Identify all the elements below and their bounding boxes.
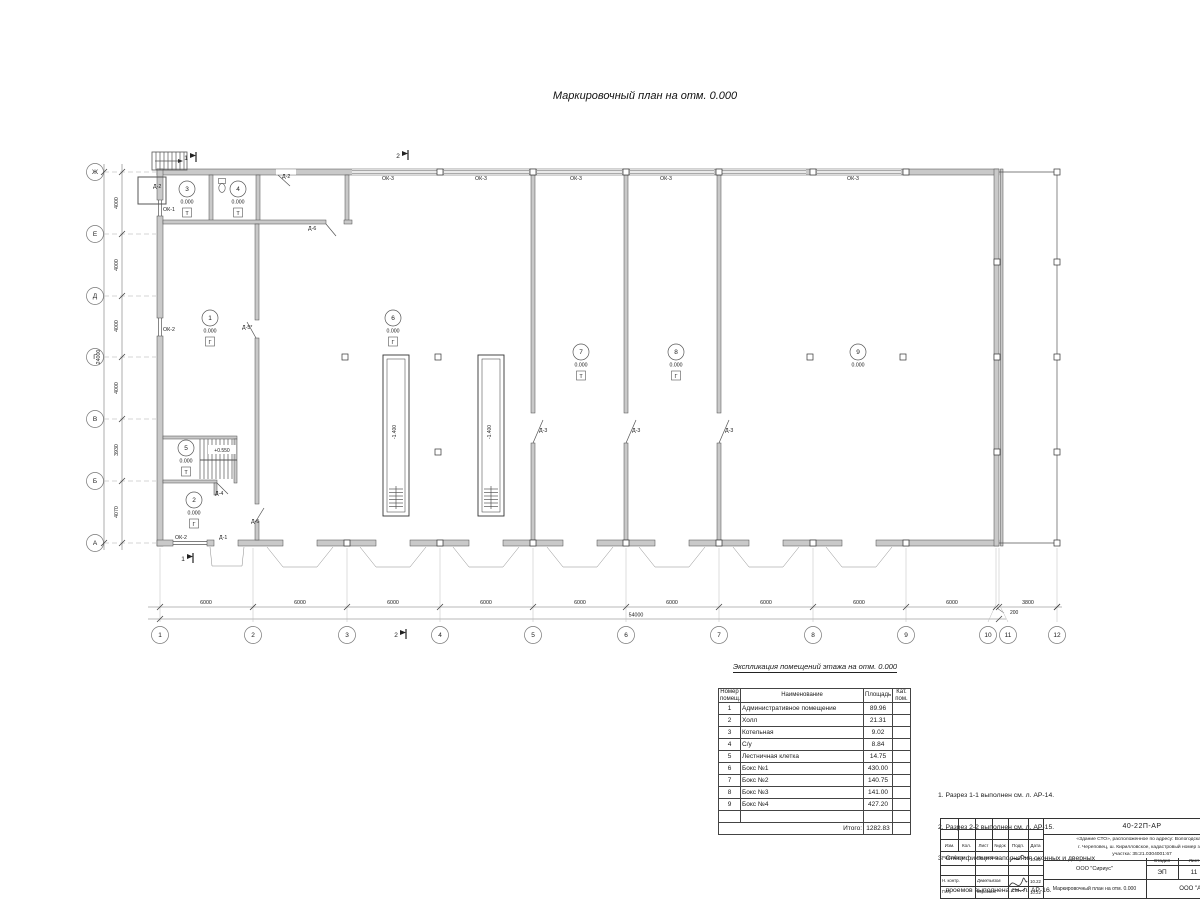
canopy: [999, 172, 1057, 543]
total-value: 1282.83: [864, 823, 893, 835]
stamp-col-list: Лист: [975, 839, 992, 851]
opening-label: ОК-2: [175, 535, 187, 541]
stamp-date-3: 10.22: [1028, 888, 1043, 897]
stamp-doc-number: 40-22П-АР: [1043, 819, 1200, 835]
table-row: 7Бокс №2140.75: [719, 775, 911, 787]
room-elevation: 0.000: [575, 363, 588, 369]
room-number: 6: [391, 315, 395, 322]
floor-type: Г: [209, 340, 212, 346]
room-elevation: 0.000: [180, 459, 193, 465]
title-block: Изм. Кол. Лист №док Подп. Дата Разработа…: [940, 818, 1200, 899]
dim-label: 6000: [480, 600, 492, 606]
room-number: 9: [856, 349, 860, 356]
stamp-name-2: Деветьязов: [977, 878, 1008, 883]
toilet-icon: [219, 179, 226, 193]
stamp-name-1: Решетова: [977, 855, 1008, 860]
axis-line: [999, 548, 1008, 622]
room-number: 1: [208, 315, 212, 322]
stamp-stage-value: ЭП: [1146, 865, 1179, 880]
stamp-role-3: ГИП: [942, 889, 975, 894]
opening-label: ОК-3: [570, 176, 582, 182]
stamp-date-2: 10.22: [1028, 877, 1043, 886]
axis-label: 12: [1053, 632, 1061, 639]
stair-elevation: +0.550: [214, 448, 230, 454]
stamp-left-grid: Изм. Кол. Лист №док Подп. Дата Разработа…: [941, 819, 1044, 898]
dim-label: 6000: [666, 600, 678, 606]
dim-label: 3800: [1022, 600, 1034, 606]
axis-label: 2: [251, 632, 255, 639]
axis-label: 10: [984, 632, 992, 639]
table-row: 5Лестничная клетка14.75: [719, 751, 911, 763]
stamp-role-1: Разработал: [942, 855, 975, 860]
section-arrow: [187, 554, 193, 559]
room-number: 3: [185, 186, 189, 193]
dim-total: 24000: [96, 350, 102, 365]
dim-label: 4000: [114, 382, 120, 394]
room-number: 7: [579, 349, 583, 356]
room-elevation: 0.000: [387, 329, 400, 335]
opening-label: ОК-1: [163, 207, 175, 213]
room-elevation: 0.000: [852, 363, 865, 369]
entry-stairs: [152, 152, 187, 170]
gate-aprons: [210, 547, 892, 567]
explication-table: Номер помещ. Наименование Площадь Кат. п…: [718, 688, 911, 835]
axis-label: 3: [345, 632, 349, 639]
axis-label: 1: [158, 632, 162, 639]
dimension-lines: [104, 164, 1062, 619]
stamp-col-podp: Подп.: [1008, 839, 1028, 851]
table-row: 4С/у8.84: [719, 739, 911, 751]
dim-label: 6000: [294, 600, 306, 606]
floor-type: Г: [675, 374, 678, 380]
floor-plan: ЖЕДГВБА123456789101112400040004000400039…: [0, 0, 1200, 760]
note-line: 1. Разрез 1-1 выполнен см. л. АР-14.: [938, 791, 1095, 802]
room-number: 8: [674, 349, 678, 356]
opening-label: ОК-3: [847, 176, 859, 182]
header-area: Площадь: [864, 689, 893, 703]
room-number: 4: [236, 186, 240, 193]
section-label: 1: [181, 556, 185, 563]
header-name: Наименование: [741, 689, 864, 703]
opening-label: Д-2: [282, 174, 290, 180]
pit-elevation: -1.400: [487, 425, 493, 439]
table-row: 6Бокс №1430.00: [719, 763, 911, 775]
stamp-col-kol: Кол.: [958, 839, 975, 851]
total-label: Итого:: [719, 823, 864, 835]
axis-label: 8: [811, 632, 815, 639]
dim-label: 4000: [114, 259, 120, 271]
table-row: 3Котельная9.02: [719, 727, 911, 739]
stamp-sheet-title: Маркировочный план на отм. 0.000: [1043, 879, 1147, 898]
room-number: 5: [184, 445, 188, 452]
opening-label: Д-4: [215, 491, 223, 497]
stamp-role-2: Н. контр.: [942, 878, 975, 883]
dim-label: 6000: [853, 600, 865, 606]
section-arrow: [402, 151, 408, 156]
axis-label: Б: [93, 478, 97, 485]
stamp-col-ndok: №док: [992, 839, 1008, 851]
section-arrow: [400, 630, 406, 635]
room-elevation: 0.000: [232, 200, 245, 206]
opening-label: Д-3: [632, 428, 640, 434]
table-row: 2Холл21.31: [719, 715, 911, 727]
axis-label: 11: [1005, 632, 1012, 639]
axis-label: Е: [93, 231, 98, 238]
axis-line: [988, 548, 996, 622]
bottom-wall: [157, 540, 999, 546]
stamp-name-3: Корогаев: [977, 889, 1008, 894]
header-room-number: Номер помещ.: [719, 689, 741, 703]
opening-label: ОК-3: [475, 176, 487, 182]
pit-elevation: -1.400: [392, 425, 398, 439]
table-spacer-row: [719, 811, 911, 823]
axis-label: Д: [93, 293, 98, 300]
header-category: Кат. пом.: [893, 689, 911, 703]
dim-label: 6000: [387, 600, 399, 606]
dim-label: 4070: [114, 506, 120, 518]
stamp-org2: ООО "Аль: [1146, 879, 1200, 898]
admin-walls: [163, 175, 352, 540]
table-header-row: Номер помещ. Наименование Площадь Кат. п…: [719, 689, 911, 703]
explication-title: Экспликация помещений этажа на отм. 0.00…: [710, 662, 920, 671]
table-row: 1Административное помещение89.96: [719, 703, 911, 715]
stamp-col-izm: Изм.: [941, 839, 958, 851]
table-total-row: Итого: 1282.83: [719, 823, 911, 835]
table-row: 8Бокс №3141.00: [719, 787, 911, 799]
section-label: 2: [396, 153, 400, 160]
opening-label: Д-5: [251, 519, 259, 525]
floor-type: Г: [392, 340, 395, 346]
opening-label: ОК-3: [660, 176, 672, 182]
opening-label: Д-3: [725, 428, 733, 434]
dim-total: 54000: [629, 613, 644, 619]
stamp-sheet-value: 11: [1178, 865, 1200, 880]
opening-label: ОК-2: [163, 327, 175, 333]
opening-label: Д-6: [308, 226, 316, 232]
axis-label: Ж: [92, 169, 98, 176]
opening-label: Д-3: [539, 428, 547, 434]
dim-label: 6000: [946, 600, 958, 606]
dim-label: 6000: [760, 600, 772, 606]
axis-label: В: [93, 416, 97, 423]
opening-label: Д-5*: [242, 325, 252, 331]
drawing-sheet: { "page": { "title": "Маркировочный план…: [0, 0, 1200, 900]
section-arrow: [190, 153, 196, 158]
dim-label: 6000: [200, 600, 212, 606]
dim-label: 3930: [114, 444, 120, 456]
room-elevation: 0.000: [204, 329, 217, 335]
axis-label: 9: [904, 632, 908, 639]
section-label: 2: [394, 632, 398, 639]
axis-label: 4: [438, 632, 442, 639]
room-elevation: 0.000: [188, 511, 201, 517]
stamp-date-1: 10.22: [1028, 854, 1043, 864]
axis-label: 6: [624, 632, 628, 639]
section-label: 1: [184, 155, 188, 162]
room-elevation: 0.000: [181, 200, 194, 206]
dim-label: 200: [1010, 610, 1019, 616]
partitions: [531, 175, 729, 540]
axis-label: 7: [717, 632, 721, 639]
dim-label: 6000: [574, 600, 586, 606]
opening-label: Д-1: [219, 535, 227, 541]
columns: [342, 169, 1060, 546]
stamp-col-data: Дата: [1028, 839, 1043, 851]
room-number: 2: [192, 497, 196, 504]
stamp-org: ООО "Сириус": [1043, 858, 1147, 880]
opening-label: Д-2: [153, 184, 161, 190]
signatures: [1008, 851, 1028, 898]
stamp-project-description: «Здание СТО», расположенное по адресу: В…: [1043, 834, 1200, 861]
floor-type: Г: [193, 522, 196, 528]
room-elevation: 0.000: [670, 363, 683, 369]
opening-label: ОК-3: [382, 176, 394, 182]
axis-label: 5: [531, 632, 535, 639]
dim-label: 4000: [114, 197, 120, 209]
table-row: 9Бокс №4427.20: [719, 799, 911, 811]
dim-label: 4000: [114, 320, 120, 332]
axis-label: А: [93, 540, 98, 547]
